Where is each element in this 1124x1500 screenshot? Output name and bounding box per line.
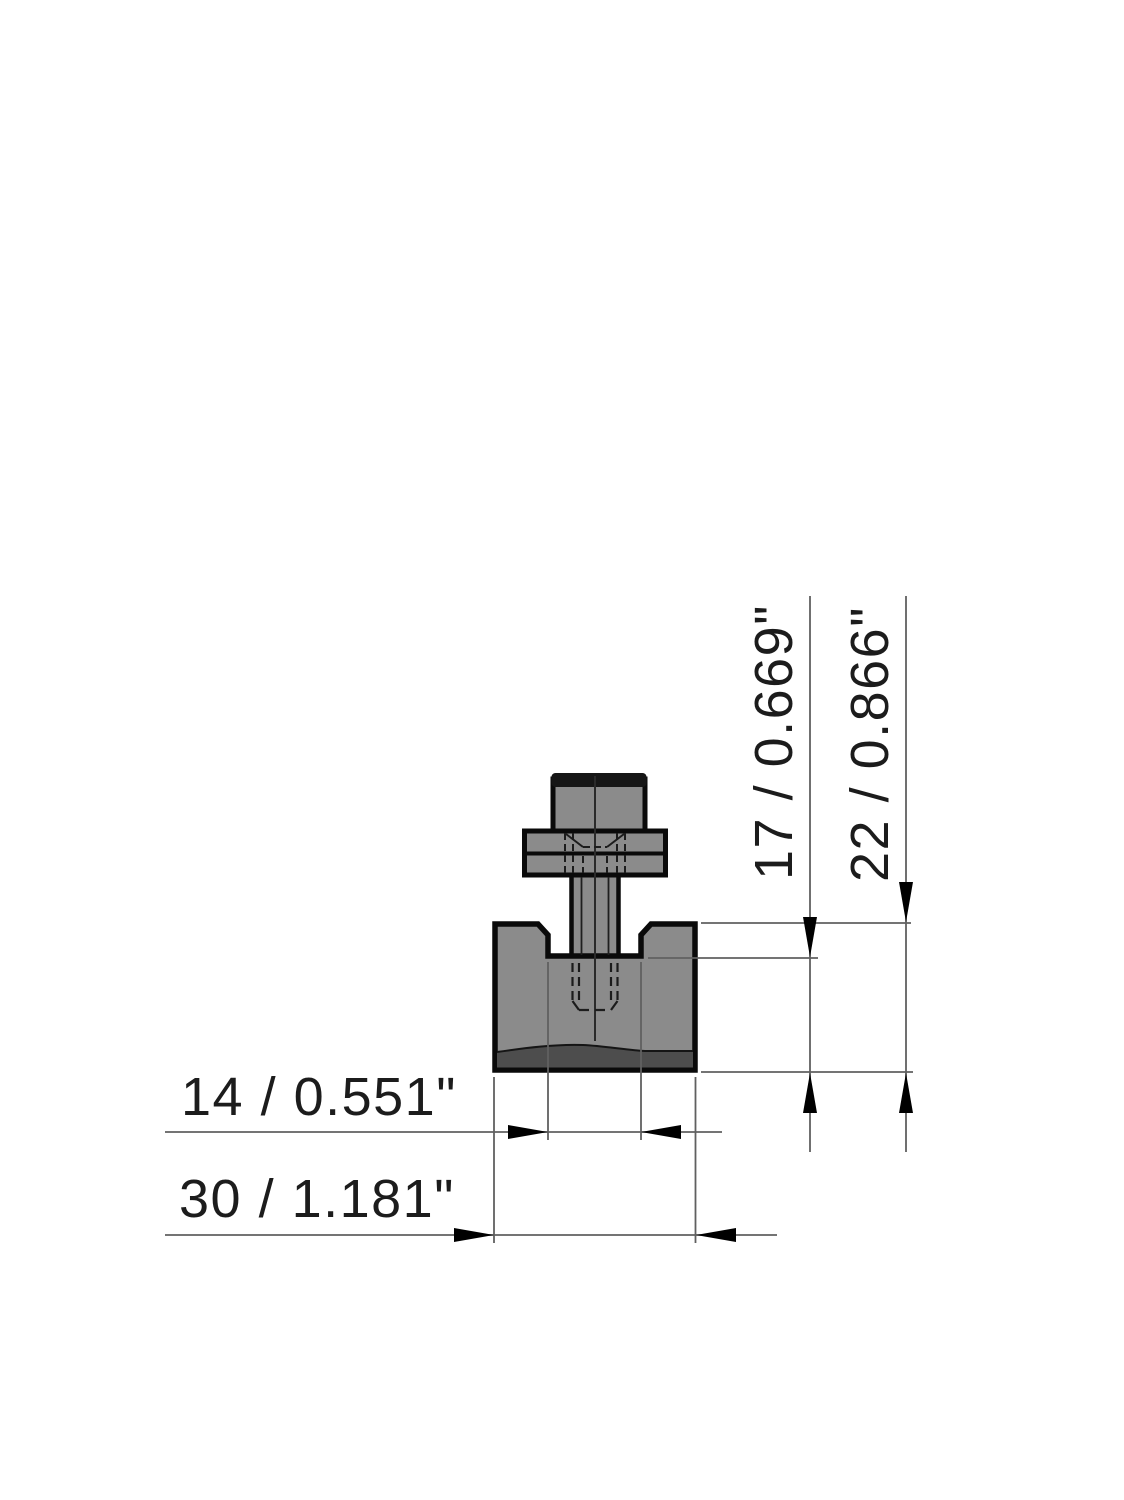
dimension-label-overall-width: 30 / 1.181" (179, 1172, 455, 1226)
drawing-canvas: 14 / 0.551" 30 / 1.181" 17 / 0.669" 22 /… (0, 0, 1124, 1500)
dimension-label-overall-height: 22 / 0.866" (843, 607, 897, 882)
arrow-17-bottom (803, 1073, 817, 1113)
technical-drawing-svg (0, 0, 1124, 1500)
arrow-14-left (508, 1125, 548, 1139)
dimension-label-slot-width: 14 / 0.551" (181, 1070, 457, 1124)
dimension-label-height-below-slot: 17 / 0.669" (747, 605, 801, 880)
arrow-30-right (696, 1228, 736, 1242)
arrow-30-left (454, 1228, 494, 1242)
arrow-22-bottom (899, 1073, 913, 1113)
arrow-17-top (803, 917, 817, 957)
bolt-head-top-cap (552, 773, 647, 787)
arrow-22-top (899, 882, 913, 922)
arrow-14-right (641, 1125, 681, 1139)
